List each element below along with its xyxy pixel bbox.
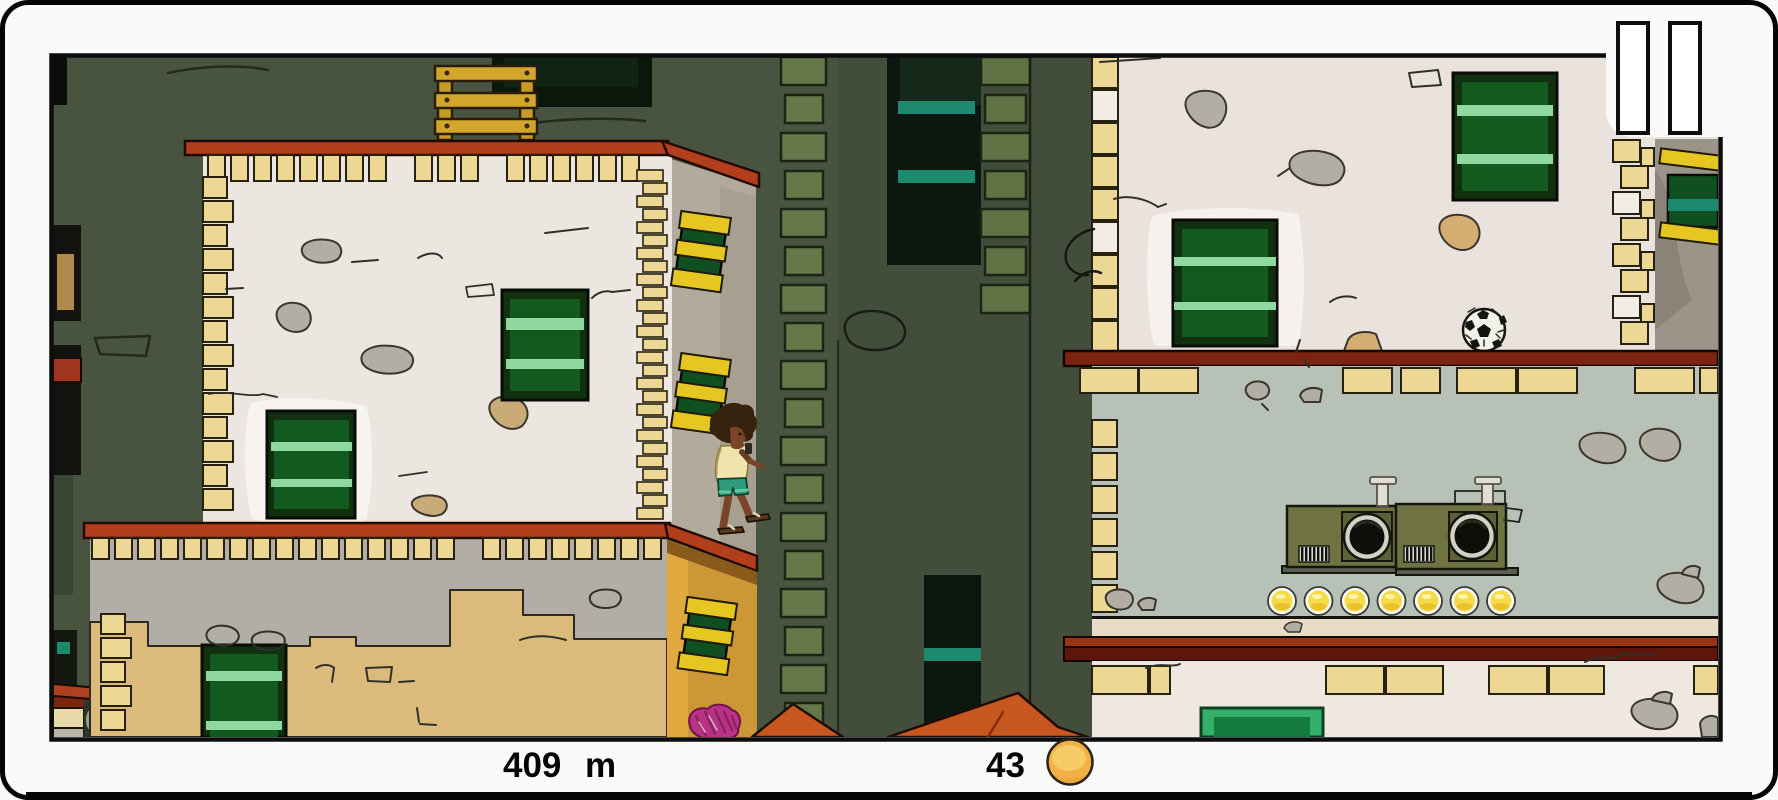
svg-text:m: m — [585, 746, 616, 785]
svg-text:409: 409 — [503, 746, 561, 785]
svg-text:43: 43 — [986, 746, 1025, 785]
